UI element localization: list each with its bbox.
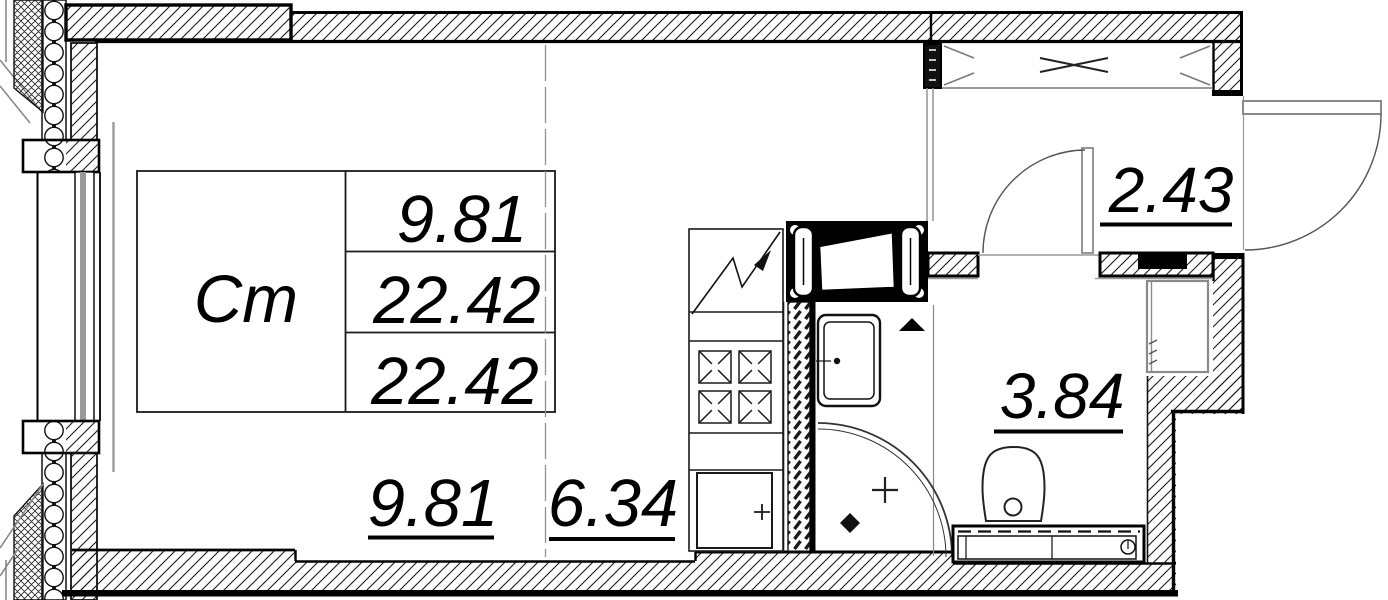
svg-text:Ст: Ст [194,262,298,337]
svg-text:22.42: 22.42 [372,263,541,338]
svg-text:6.34: 6.34 [548,466,678,541]
svg-text:9.81: 9.81 [368,466,498,541]
svg-text:3.84: 3.84 [1000,360,1125,432]
svg-text:9.81: 9.81 [397,182,527,257]
svg-text:22.42: 22.42 [370,344,539,419]
svg-text:2.43: 2.43 [1108,154,1234,226]
